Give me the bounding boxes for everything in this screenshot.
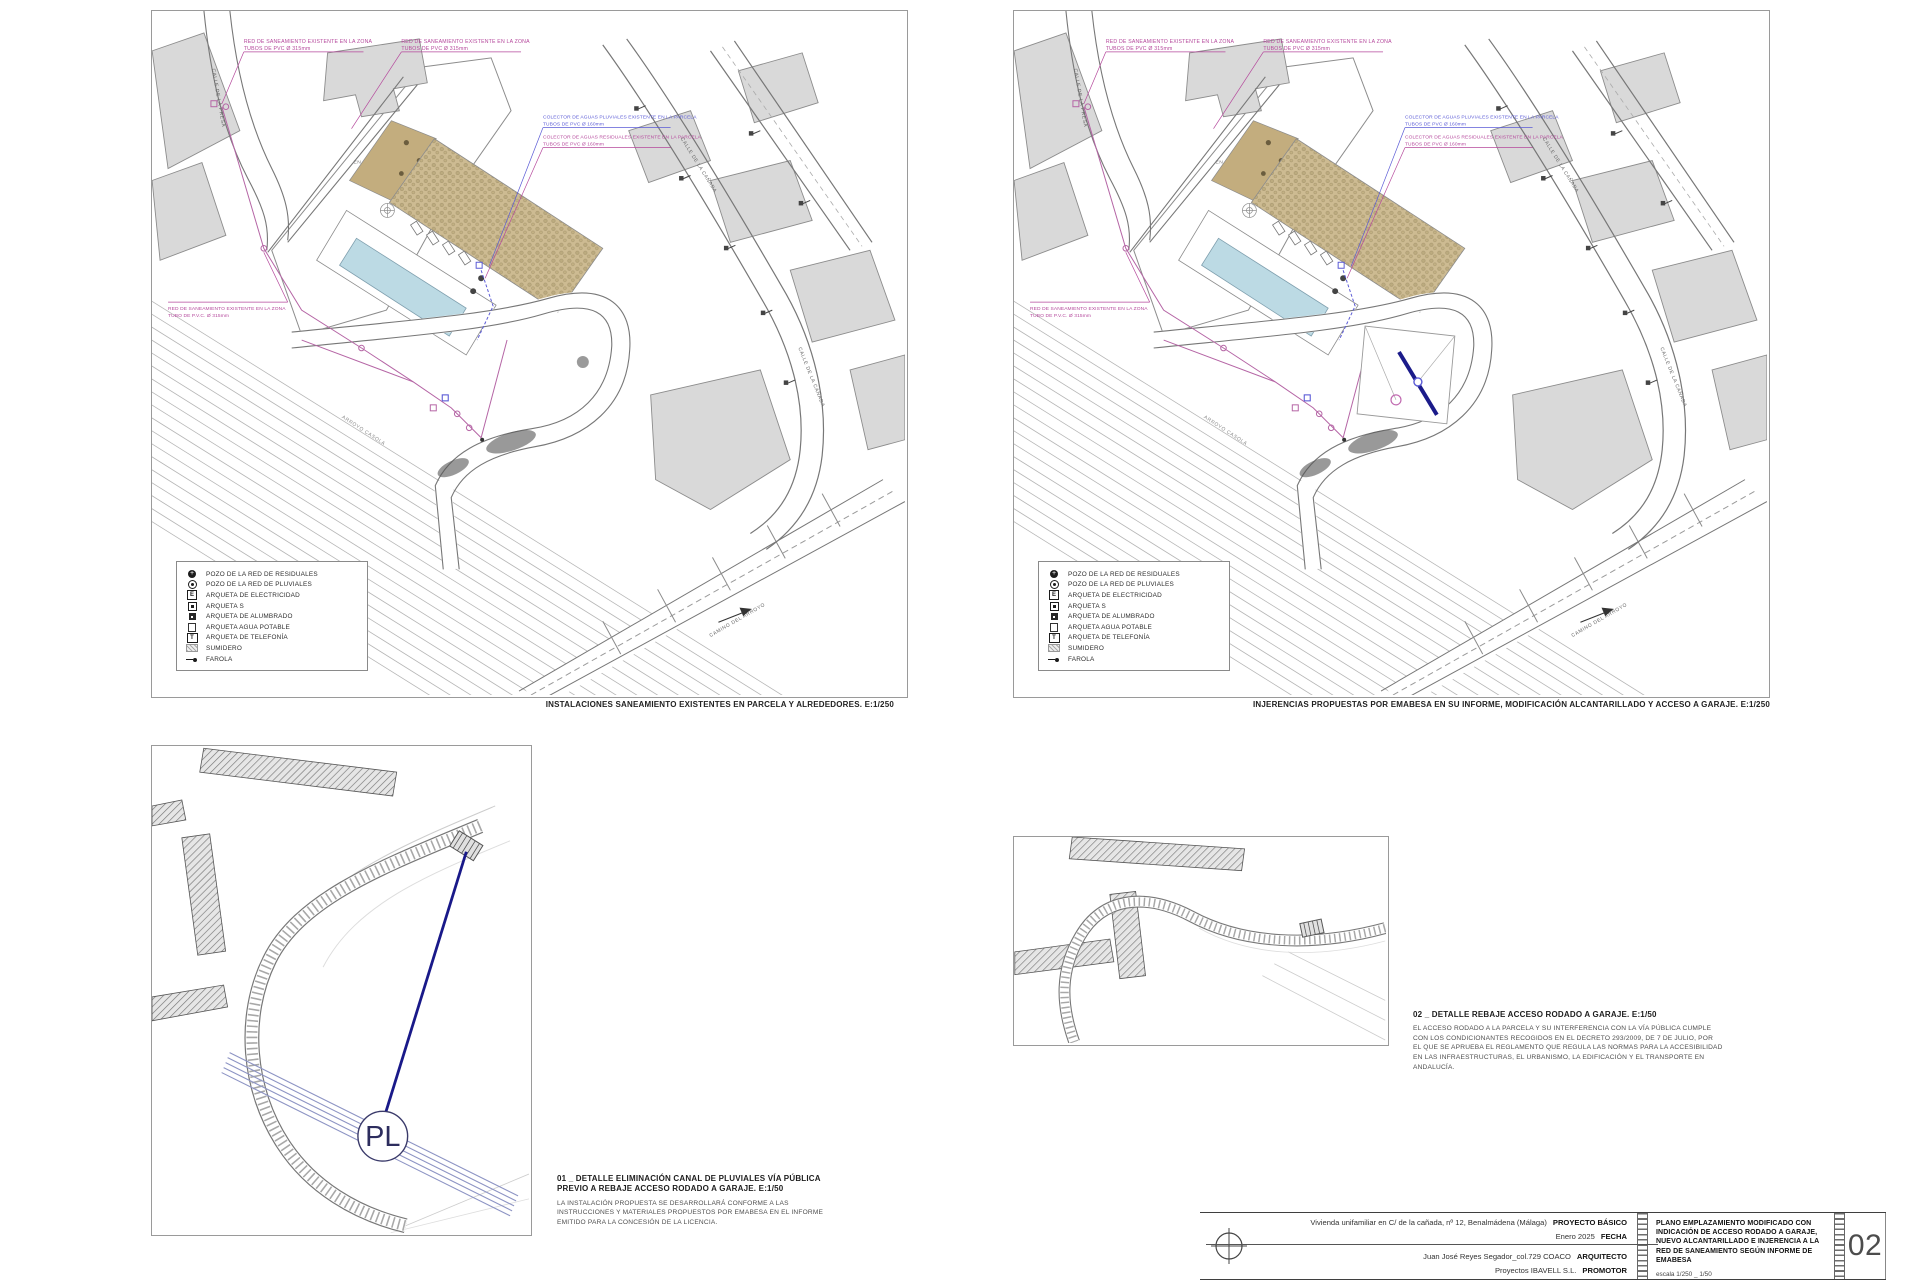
arqueta-electricidad-icon: E	[186, 590, 198, 600]
plan-emabesa-proposal: +POZO DE LA RED DE RESIDUALES POZO DE LA…	[1013, 10, 1770, 698]
legend-label: POZO DE LA RED DE PLUVIALES	[1068, 581, 1174, 588]
caption-detail-1: 01 _ DETALLE ELIMINACIÓN CANAL DE PLUVIA…	[557, 1174, 857, 1227]
legend-label: ARQUETA S	[1068, 603, 1106, 610]
promoter-label: PROMOTOR	[1582, 1266, 1627, 1275]
detail1-title-line2: PREVIO A REBAJE ACCESO RODADO A GARAJE. …	[557, 1184, 857, 1194]
pl-label: PL	[365, 1121, 400, 1153]
promoter-name: Proyectos IBAVELL S.L.	[1495, 1266, 1576, 1275]
legend-label: ARQUETA DE ELECTRICIDAD	[206, 592, 300, 599]
legend-right: +POZO DE LA RED DE RESIDUALES POZO DE LA…	[1038, 561, 1230, 671]
arqueta-agua-icon	[186, 622, 198, 632]
ruler-strip	[1637, 1213, 1648, 1279]
project-date: Enero 2025	[1556, 1232, 1595, 1241]
plan-title: PLANO EMPLAZAMIENTO MODIFICADO CON INDIC…	[1656, 1219, 1826, 1265]
legend-label: POZO DE LA RED DE RESIDUALES	[206, 571, 318, 578]
detail-rebaje-acceso	[1013, 836, 1389, 1046]
pozo-pluviales-icon	[186, 580, 198, 590]
new-access-overlay	[1357, 326, 1455, 424]
detail-canal-pluviales: PL	[151, 745, 532, 1236]
legend-label: SUMIDERO	[1068, 645, 1104, 652]
caption-detail-2: 02 _ DETALLE REBAJE ACCESO RODADO A GARA…	[1413, 1010, 1743, 1072]
detail2-cobble-curb	[1064, 902, 1385, 1042]
legend-label: FAROLA	[1068, 656, 1094, 663]
detail1-title-line1: 01 _ DETALLE ELIMINACIÓN CANAL DE PLUVIA…	[557, 1174, 857, 1184]
farola-icon	[186, 654, 198, 664]
farola-icon	[1048, 654, 1060, 664]
title-block-project-info: Vivienda unifamiliar en C/ de la cañada,…	[1200, 1213, 1637, 1279]
sumidero-icon	[186, 643, 198, 653]
legend-label: ARQUETA DE ALUMBRADO	[1068, 613, 1155, 620]
project-label: PROYECTO BÁSICO	[1553, 1218, 1627, 1227]
arqueta-telefonia-icon: T	[186, 633, 198, 643]
legend-label: ARQUETA AGUA POTABLE	[1068, 624, 1152, 631]
detail1-body: LA INSTALACIÓN PROPUESTA SE DESARROLLARÁ…	[557, 1199, 847, 1228]
title-block-divider	[1206, 1244, 1658, 1245]
legend-label: FAROLA	[206, 656, 232, 663]
new-connection-line	[386, 852, 467, 1113]
legend-left: +POZO DE LA RED DE RESIDUALES POZO DE LA…	[176, 561, 368, 671]
pozo-residuales-icon: +	[186, 569, 198, 579]
arqueta-agua-icon	[1048, 622, 1060, 632]
legend-label: ARQUETA DE ELECTRICIDAD	[1068, 592, 1162, 599]
architect-name: Juan José Reyes Segador_col.729 COACO	[1423, 1252, 1571, 1261]
arqueta-s-icon	[1048, 601, 1060, 611]
compass-icon	[1210, 1227, 1248, 1265]
arqueta-alumbrado-icon	[186, 612, 198, 622]
detail1-road-lines	[281, 806, 529, 1233]
legend-label: ARQUETA DE TELEFONÍA	[1068, 634, 1150, 641]
date-label: FECHA	[1601, 1232, 1627, 1241]
legend-label: ARQUETA DE TELEFONÍA	[206, 634, 288, 641]
legend-label: POZO DE LA RED DE PLUVIALES	[206, 581, 312, 588]
plan-existing-installations: +POZO DE LA RED DE RESIDUALES POZO DE LA…	[151, 10, 908, 698]
pozo-residuales-icon: +	[1048, 569, 1060, 579]
title-block: Vivienda unifamiliar en C/ de la cañada,…	[1200, 1212, 1886, 1280]
arqueta-s-icon	[186, 601, 198, 611]
detail2-body: EL ACCESO RODADO A LA PARCELA Y SU INTER…	[1413, 1024, 1723, 1072]
caption-plan-right: INJERENCIAS PROPUESTAS POR EMABESA EN SU…	[1013, 700, 1770, 709]
arqueta-telefonia-icon: T	[1048, 633, 1060, 643]
legend-label: ARQUETA DE ALUMBRADO	[206, 613, 293, 620]
sheet-number-cell: 02	[1845, 1213, 1886, 1279]
legend-label: POZO DE LA RED DE RESIDUALES	[1068, 571, 1180, 578]
detail2-title: 02 _ DETALLE REBAJE ACCESO RODADO A GARA…	[1413, 1010, 1743, 1020]
legend-label: ARQUETA S	[206, 603, 244, 610]
sheet-number: 02	[1848, 1229, 1882, 1263]
caption-plan-left: INSTALACIONES SANEAMIENTO EXISTENTES EN …	[151, 700, 894, 709]
architect-label: ARQUITECTO	[1577, 1252, 1627, 1261]
legend-label: SUMIDERO	[206, 645, 242, 652]
pozo-pluviales-icon	[1048, 580, 1060, 590]
legend-label: ARQUETA AGUA POTABLE	[206, 624, 290, 631]
project-description: Vivienda unifamiliar en C/ de la cañada,…	[1310, 1218, 1547, 1227]
drawing-sheet: CAMINO DEL ARROYO SOLAR EN URBANIZACIÓN	[0, 0, 1920, 1280]
plan-scale: escala 1/250 _ 1/50	[1656, 1271, 1826, 1278]
sumidero-icon	[1048, 643, 1060, 653]
ruler-strip	[1834, 1213, 1845, 1279]
arqueta-electricidad-icon: E	[1048, 590, 1060, 600]
title-block-plan-title: PLANO EMPLAZAMIENTO MODIFICADO CON INDIC…	[1648, 1213, 1834, 1279]
arqueta-alumbrado-icon	[1048, 612, 1060, 622]
